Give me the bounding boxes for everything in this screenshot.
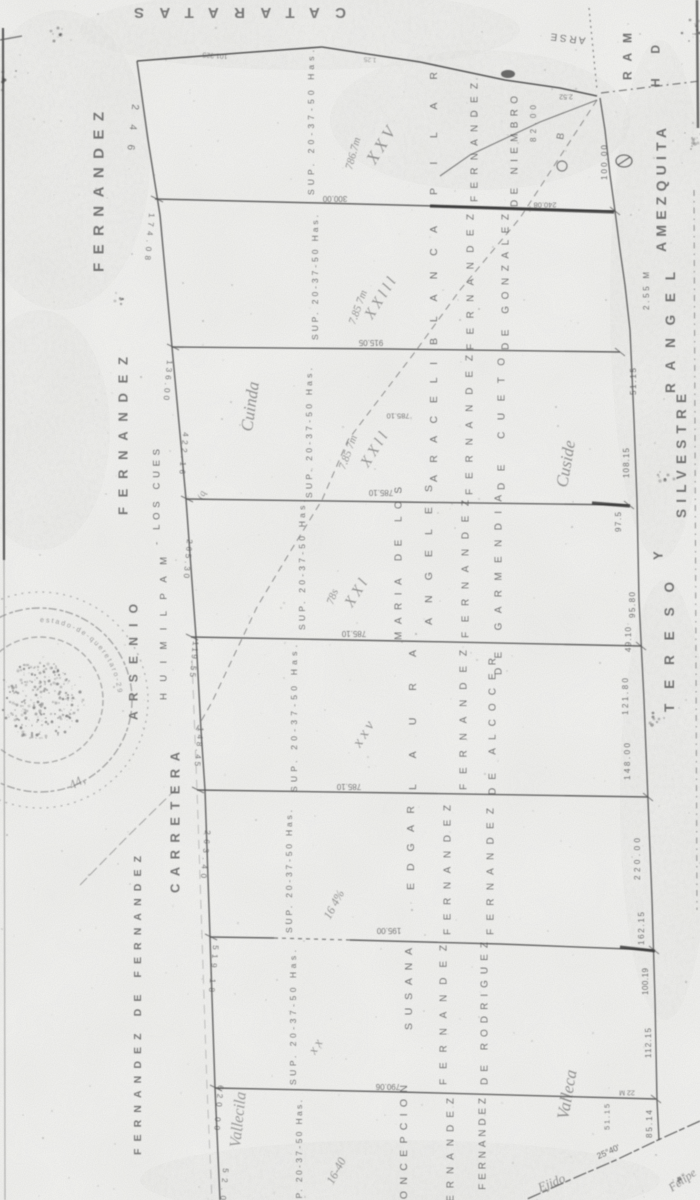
svg-text:FERNANDEZ: FERNANDEZ bbox=[116, 357, 131, 515]
svg-text:915.05: 915.05 bbox=[358, 338, 383, 347]
svg-text:785.10: 785.10 bbox=[341, 629, 366, 638]
svg-text:CONCEPCION: CONCEPCION bbox=[398, 1085, 410, 1200]
svg-text:240.08: 240.08 bbox=[534, 200, 557, 209]
svg-text:FERNANDEZ: FERNANDEZ bbox=[90, 112, 107, 272]
svg-text:785.10: 785.10 bbox=[368, 488, 393, 497]
svg-text:49.10: 49.10 bbox=[624, 626, 633, 652]
svg-text:FERNANDEZ: FERNANDEZ bbox=[459, 650, 470, 790]
svg-text:HUIMILPAM: HUIMILPAM bbox=[158, 557, 169, 700]
svg-text:- LOS CUES: - LOS CUES bbox=[151, 449, 162, 545]
svg-text:51.15: 51.15 bbox=[603, 1104, 612, 1130]
svg-text:DE ALCOCER: DE ALCOCER bbox=[488, 658, 499, 795]
svg-text:P I L A R: P I L A R bbox=[428, 72, 440, 195]
svg-text:785.10: 785.10 bbox=[336, 782, 361, 791]
svg-text:FERNANDEZ: FERNANDEZ bbox=[466, 214, 477, 350]
svg-text:790.06: 790.06 bbox=[375, 1082, 400, 1091]
svg-text:FERNANDEZ: FERNANDEZ bbox=[465, 355, 476, 495]
svg-text:785.10: 785.10 bbox=[387, 411, 410, 420]
svg-text:FERNANDEZ: FERNANDEZ bbox=[461, 500, 472, 638]
svg-text:1.25: 1.25 bbox=[363, 55, 376, 63]
svg-text:51.15: 51.15 bbox=[629, 367, 638, 395]
svg-text:CARRETERA: CARRETERA bbox=[168, 751, 183, 893]
svg-text:H D: H D bbox=[648, 45, 662, 87]
svg-text:300.00: 300.00 bbox=[322, 194, 347, 203]
svg-text:195.00: 195.00 bbox=[376, 926, 401, 935]
svg-text:85.14: 85.14 bbox=[645, 1109, 654, 1138]
svg-text:RAM: RAM bbox=[620, 33, 634, 80]
svg-text:100.19: 100.19 bbox=[641, 967, 650, 995]
svg-text:FERNANDEZ: FERNANDEZ bbox=[439, 945, 450, 1085]
svg-text:22 M: 22 M bbox=[619, 1089, 635, 1096]
svg-text:108.15: 108.15 bbox=[622, 447, 631, 478]
svg-text:95.80: 95.80 bbox=[628, 591, 637, 618]
svg-text:DE NIEMBRO: DE NIEMBRO bbox=[510, 96, 521, 207]
svg-text:Y: Y bbox=[651, 551, 666, 560]
svg-text:FERNANDEZ: FERNANDEZ bbox=[486, 808, 497, 935]
svg-text:97.5: 97.5 bbox=[614, 511, 623, 532]
svg-text:FERNANDEZ: FERNANDEZ bbox=[443, 805, 454, 935]
svg-text:2.52: 2.52 bbox=[559, 93, 573, 100]
svg-text:CATARATAS: CATARATAS bbox=[134, 4, 346, 21]
svg-text:E D G A R: E D G A R bbox=[405, 806, 417, 890]
svg-text:AMEZQUITA: AMEZQUITA bbox=[653, 128, 669, 252]
svg-text:SILVESTRE: SILVESTRE bbox=[674, 394, 689, 518]
